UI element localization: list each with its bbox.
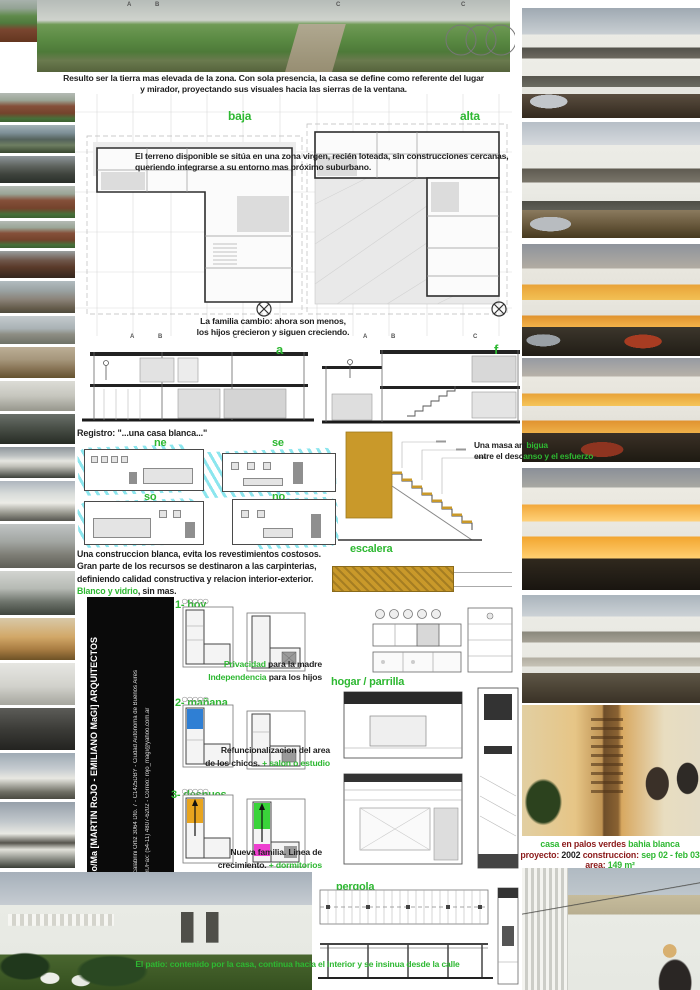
firm-address: Scalabrini Ortiz 3064 Dto. 7 - C1425DBY … bbox=[133, 615, 139, 877]
right-photo-house-night bbox=[522, 468, 700, 590]
left-photo-intwarm bbox=[0, 618, 75, 660]
left-photo-slabsky bbox=[0, 316, 75, 344]
right-photo-terrace-view bbox=[522, 868, 700, 990]
phase3-note: Nueva familia. Linea de crecimiento. + d… bbox=[172, 846, 322, 871]
beam-detail-drawing bbox=[332, 566, 454, 592]
phase2-note: Refuncionalizacion del area de los chico… bbox=[172, 744, 330, 769]
fireplace-drawing bbox=[340, 686, 522, 872]
left-photo-brick bbox=[0, 186, 75, 218]
elevation-se-drawing bbox=[222, 453, 336, 492]
left-photo-intplant bbox=[0, 414, 75, 444]
left-photo-brick bbox=[0, 93, 75, 122]
left-photo-intladder bbox=[0, 347, 75, 378]
section-label-f: f bbox=[494, 342, 498, 357]
family-note: La familia cambio: ahora son menos, los … bbox=[188, 316, 358, 337]
left-photo-brick bbox=[0, 221, 75, 248]
panorama-photo bbox=[37, 0, 510, 72]
left-photo-concrete bbox=[0, 281, 75, 313]
plan-label-alta: alta bbox=[460, 109, 480, 123]
firm-title: Ro/Ma [MARTIN RoJO - EMILIANO MaGI] ARQU… bbox=[89, 599, 99, 878]
grid-letter-c2: C bbox=[461, 2, 465, 8]
elevation-ne-drawing bbox=[84, 449, 204, 491]
masa-note: Una masa ambigua entre el descanso y el … bbox=[474, 440, 698, 461]
dirt-road bbox=[286, 24, 347, 72]
right-photo-house-day bbox=[522, 595, 700, 703]
left-photo-intterrace bbox=[0, 571, 75, 615]
dimension-line bbox=[454, 586, 512, 587]
firm-contact: Tel./Fax: (54-11) 4807-6202 - Correo: ro… bbox=[145, 615, 151, 877]
left-photo-housesky bbox=[0, 753, 75, 799]
elevation-label-se: se bbox=[272, 437, 284, 449]
left-photo-intwhite bbox=[0, 381, 75, 411]
section-f bbox=[322, 350, 520, 422]
grid-letter-a: A bbox=[127, 2, 131, 8]
site-caption: Resulto ser la tierra mas elevada de la … bbox=[37, 73, 510, 94]
stair-label: escalera bbox=[350, 543, 392, 555]
left-photo-strip bbox=[0, 0, 75, 990]
dimension-line bbox=[454, 572, 512, 573]
elevation-label-ne: ne bbox=[154, 437, 166, 449]
floor-plans-drawing bbox=[75, 94, 512, 336]
patio-caption: El patio: contenido por la casa, continu… bbox=[85, 959, 510, 969]
elevation-so-drawing bbox=[84, 501, 204, 545]
presentation-board: A B C C Resulto ser la tierra mas elevad… bbox=[0, 0, 700, 990]
grid-bubbles-icon bbox=[443, 16, 515, 64]
project-info: casa en palos verdes bahia blanca proyec… bbox=[520, 839, 700, 871]
right-photo-house-front bbox=[522, 122, 700, 238]
patio-photo bbox=[0, 872, 312, 990]
pergola-drawing bbox=[318, 886, 522, 990]
left-photo-water bbox=[0, 125, 75, 153]
grid-letter-b: B bbox=[155, 2, 159, 8]
left-photo-intdark bbox=[0, 708, 75, 750]
left-photo-brickdark bbox=[0, 251, 75, 278]
left-photo-whiteabs bbox=[0, 663, 75, 705]
left-photo-concretedark bbox=[0, 156, 75, 183]
left-photo-housetwo bbox=[0, 802, 75, 868]
right-photo-house-dusk bbox=[522, 244, 700, 356]
plan-label-baja: baja bbox=[228, 109, 251, 123]
firm-info-bar: Ro/Ma [MARTIN RoJO - EMILIANO MaGI] ARQU… bbox=[87, 597, 174, 880]
right-photo-house-side bbox=[522, 8, 700, 118]
grid-letter-c: C bbox=[336, 2, 340, 8]
left-photo-concretegray bbox=[0, 524, 75, 568]
sections-drawing bbox=[80, 338, 520, 432]
circle-x-icon bbox=[490, 300, 508, 318]
registro-caption: Registro: "...una casa blanca..." bbox=[77, 428, 207, 438]
elevation-no-drawing bbox=[232, 499, 336, 545]
right-photo-interior-stair bbox=[522, 705, 700, 836]
left-photo-housedark bbox=[0, 447, 75, 478]
kitchen-elevation-drawing bbox=[368, 604, 518, 678]
phase1-note: Privacidad para la madre Independencia p… bbox=[172, 658, 322, 683]
construction-note: Una construccion blanca, evita los reves… bbox=[77, 548, 367, 598]
section-label-a: a bbox=[276, 342, 283, 357]
left-photo-housewhite bbox=[0, 481, 75, 521]
terrain-note: El terreno disponible se sitúa en una zo… bbox=[135, 151, 520, 173]
section-a bbox=[82, 352, 314, 420]
